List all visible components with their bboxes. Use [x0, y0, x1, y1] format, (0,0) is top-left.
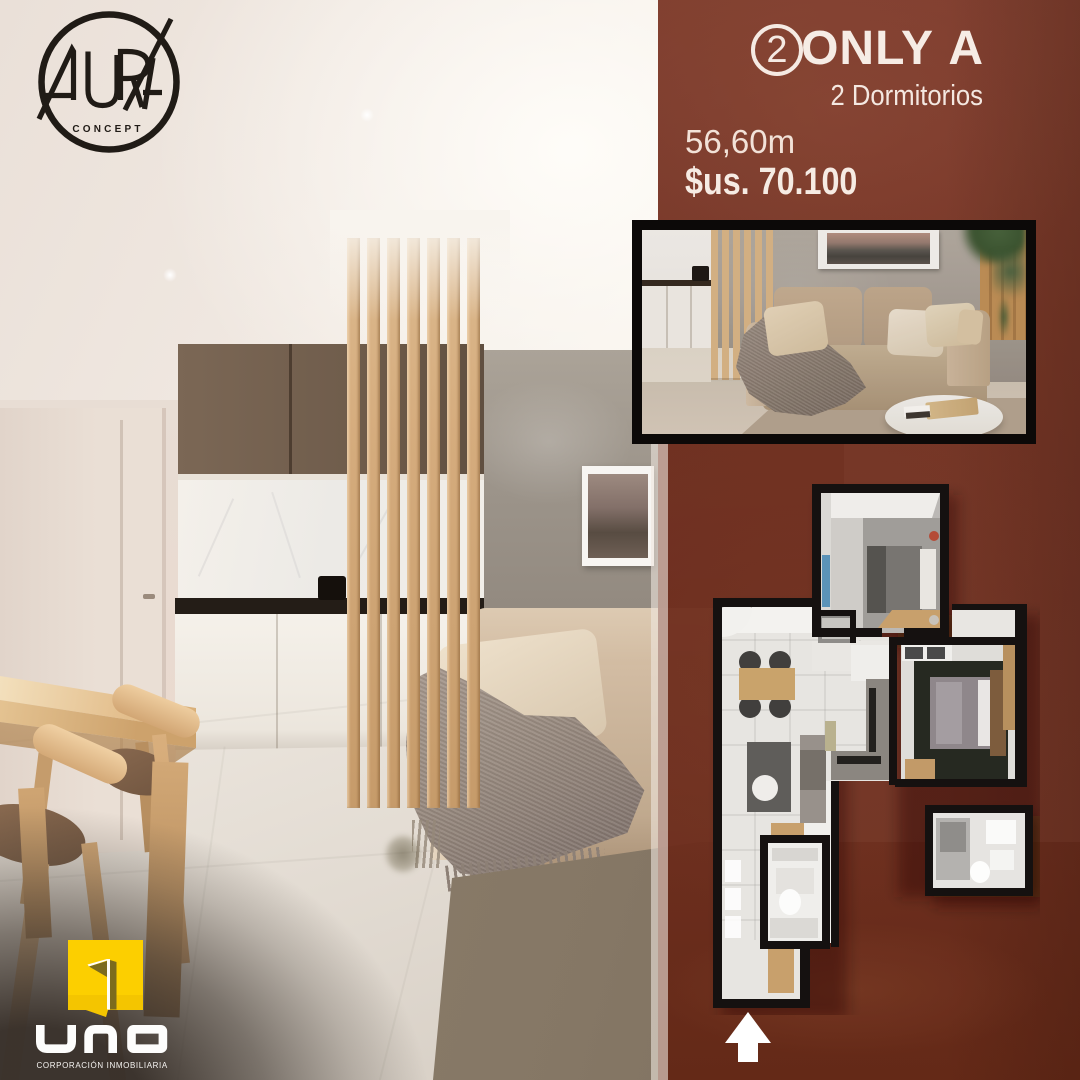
svg-text:CONCEPT: CONCEPT	[72, 124, 143, 135]
svg-text:CORPORACIÓN INMOBILIARIA: CORPORACIÓN INMOBILIARIA	[37, 1061, 168, 1070]
